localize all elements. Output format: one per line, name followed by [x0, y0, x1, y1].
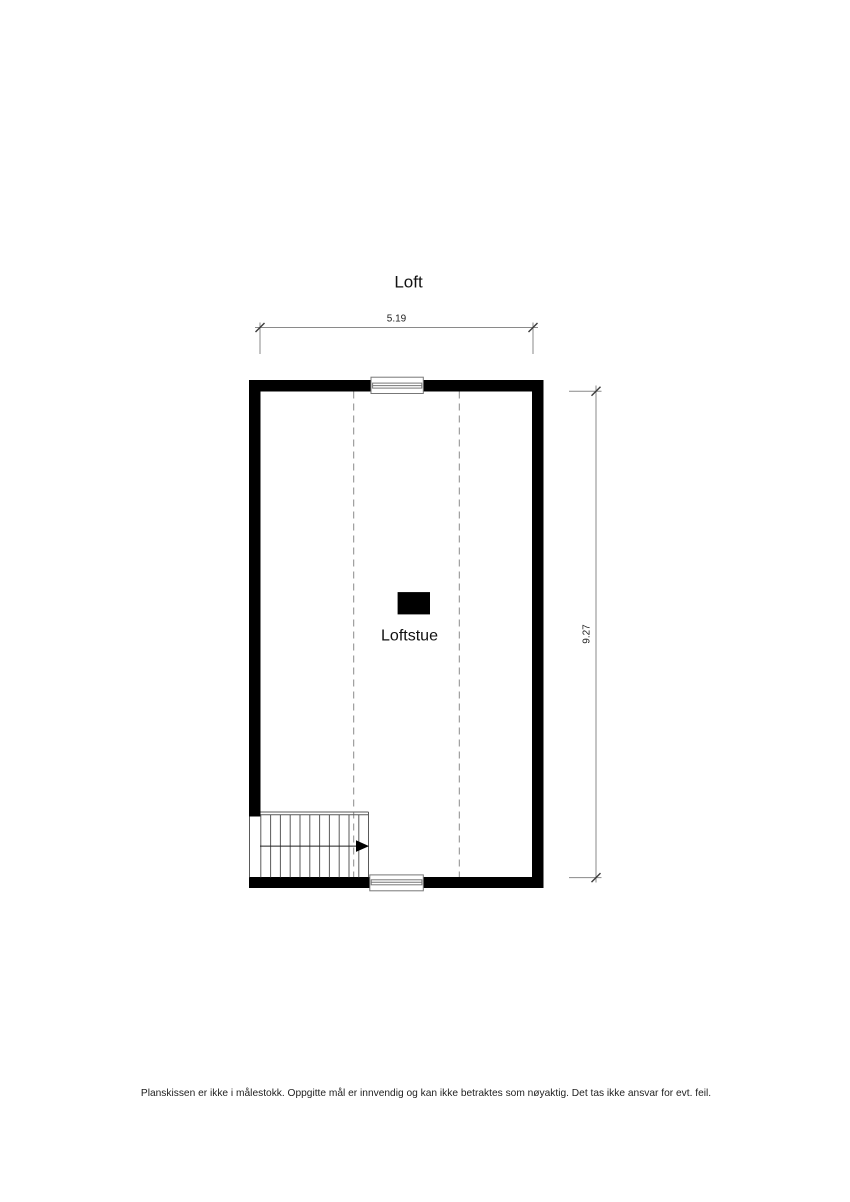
svg-text:Loftstue: Loftstue — [381, 627, 438, 644]
svg-text:Loft: Loft — [394, 273, 423, 292]
svg-text:9.27: 9.27 — [582, 624, 593, 644]
svg-text:5.19: 5.19 — [387, 314, 407, 325]
svg-text:Planskissen er ikke i målestok: Planskissen er ikke i målestokk. Oppgitt… — [141, 1087, 711, 1099]
